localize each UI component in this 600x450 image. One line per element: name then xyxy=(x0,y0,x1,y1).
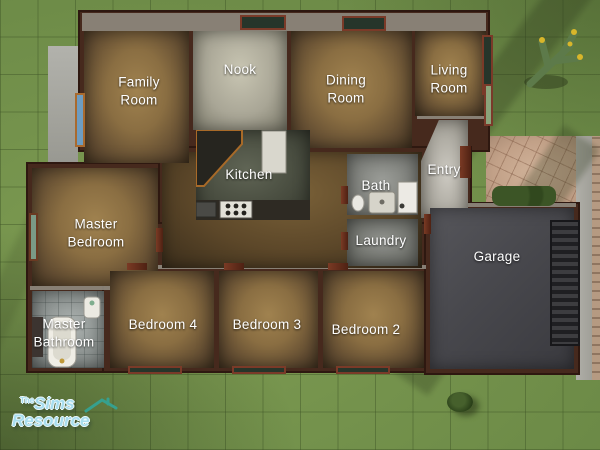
bedroom-3-floor[interactable] xyxy=(219,271,318,368)
garage-interior-door[interactable] xyxy=(424,214,431,234)
toilet[interactable] xyxy=(84,297,100,318)
master-bedroom-door[interactable] xyxy=(156,228,163,252)
sims2-floorplan-screenshot: Family Room Nook Dining Room Living Room… xyxy=(0,0,600,450)
window[interactable] xyxy=(336,366,390,374)
bedroom-2-door[interactable] xyxy=(328,263,348,270)
bath-fixtures[interactable] xyxy=(347,154,418,215)
bedroom-2-floor[interactable] xyxy=(323,271,424,368)
family-room-floor[interactable] xyxy=(84,31,189,163)
dishwasher[interactable] xyxy=(196,202,216,217)
laundry-floor[interactable] xyxy=(347,219,418,266)
bedroom-4-floor[interactable] xyxy=(110,271,214,368)
window[interactable] xyxy=(240,15,286,30)
tsr-watermark-resource: Resource xyxy=(12,411,89,431)
kitchen-counters[interactable] xyxy=(196,130,310,220)
stove[interactable] xyxy=(220,201,252,218)
small-bush[interactable] xyxy=(447,392,473,412)
refrigerator[interactable] xyxy=(262,131,286,173)
laundry-door[interactable] xyxy=(341,232,348,250)
window[interactable] xyxy=(75,93,85,147)
toilet[interactable] xyxy=(352,195,364,211)
window[interactable] xyxy=(342,16,386,31)
window[interactable] xyxy=(232,366,286,374)
tsr-watermark-the: The xyxy=(20,396,34,405)
front-door[interactable] xyxy=(460,146,471,178)
wall-picture[interactable] xyxy=(484,84,493,126)
shower-stall[interactable] xyxy=(398,182,417,213)
bathroom-counter[interactable] xyxy=(32,317,43,357)
nook-floor[interactable] xyxy=(193,31,287,130)
window[interactable] xyxy=(128,366,182,374)
cactus-plant[interactable] xyxy=(512,24,598,96)
cobblestone-edge xyxy=(592,136,600,380)
hedge-plants[interactable] xyxy=(492,186,556,206)
counter-island[interactable] xyxy=(196,130,242,186)
living-room-floor[interactable] xyxy=(415,31,486,116)
master-bath-fixtures[interactable] xyxy=(32,291,104,368)
garage-door[interactable] xyxy=(550,220,580,346)
tsr-watermark-logo: The Sims Resource xyxy=(8,394,138,442)
wall-top-band xyxy=(417,116,488,119)
bedroom-3-door[interactable] xyxy=(224,263,244,270)
mirror[interactable] xyxy=(29,213,38,261)
bedroom-4-door[interactable] xyxy=(127,263,147,270)
